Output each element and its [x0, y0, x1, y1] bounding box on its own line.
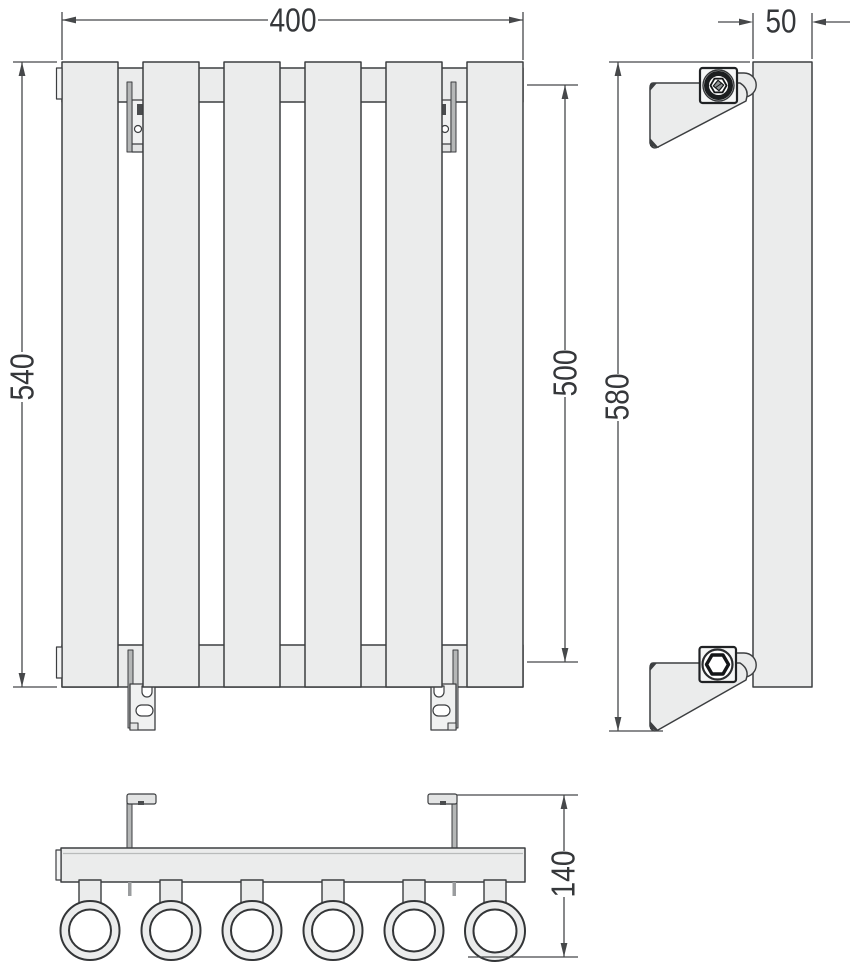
- tube-inner: [69, 910, 111, 952]
- tube-inner: [474, 910, 517, 953]
- hook-strip: [452, 797, 457, 853]
- arrowhead: [739, 19, 753, 26]
- side-view: [650, 62, 812, 731]
- hook-stub: [128, 882, 132, 896]
- dim-side-height: 580: [599, 62, 751, 731]
- bolt-hex-head: [707, 655, 729, 674]
- tube-inner: [231, 910, 273, 952]
- front-panel-3: [224, 62, 280, 687]
- arrowhead: [562, 85, 569, 99]
- tube-inner: [393, 910, 435, 952]
- bracket-foot: [130, 723, 138, 730]
- bracket-foot: [448, 723, 456, 730]
- front-panel-6: [467, 62, 523, 687]
- dim-front-height-label: 540: [4, 354, 41, 401]
- tube-inner: [150, 910, 192, 952]
- arrowhead: [562, 648, 569, 662]
- arrowhead: [19, 673, 26, 687]
- dim-panel-depth-label: 50: [766, 3, 797, 40]
- bracket-foot: [132, 144, 143, 152]
- hook-strip: [127, 797, 132, 853]
- bracket-oval-slot: [136, 705, 153, 716]
- bottom-hook-left: [127, 794, 156, 853]
- arrowhead: [561, 795, 568, 809]
- bottom-view: [56, 794, 525, 961]
- bottom-hook-right: [428, 794, 457, 853]
- tube-inner: [312, 910, 354, 952]
- front-panel-5: [386, 62, 442, 687]
- arrowhead: [812, 19, 826, 26]
- dim-bottom-depth-label: 140: [545, 851, 582, 898]
- arrowhead: [62, 17, 76, 24]
- side-bracket-top: [650, 68, 756, 148]
- hook-mark: [440, 801, 446, 805]
- dim-panel-depth: 50: [718, 3, 850, 60]
- hook-mark: [138, 801, 144, 805]
- front-panel-2: [143, 62, 199, 687]
- radiator-technical-drawing: 400 540 500: [0, 0, 852, 970]
- dim-front-width-label: 400: [270, 2, 317, 39]
- dim-collector-spacing: 500: [527, 85, 584, 662]
- side-bracket-bottom: [650, 647, 756, 731]
- bottom-tubes: [61, 901, 526, 961]
- bracket-hook-mark: [137, 104, 143, 115]
- bracket-strip: [127, 82, 132, 152]
- dim-side-height-label: 580: [599, 374, 636, 421]
- front-view: [57, 62, 524, 730]
- arrowhead: [615, 717, 622, 731]
- drawing-canvas: 400 540 500: [0, 0, 852, 970]
- front-left-tab-top: [57, 68, 63, 99]
- dim-front-height: 540: [4, 62, 58, 687]
- arrowhead: [19, 62, 26, 76]
- bracket-hole: [135, 126, 142, 133]
- arrowhead: [561, 943, 568, 957]
- front-panel-1: [62, 62, 118, 687]
- bottom-left-tab: [56, 850, 61, 880]
- dim-front-width: 400: [62, 2, 523, 61]
- hook-stub: [453, 882, 457, 896]
- side-panel: [753, 62, 812, 687]
- front-left-tab-bottom: [57, 647, 63, 678]
- arrowhead: [509, 17, 523, 24]
- bracket-oval-slot: [433, 705, 450, 716]
- dim-collector-spacing-label: 500: [547, 350, 584, 397]
- bracket-strip: [451, 82, 456, 152]
- arrowhead: [615, 62, 622, 76]
- front-panel-4: [305, 62, 361, 687]
